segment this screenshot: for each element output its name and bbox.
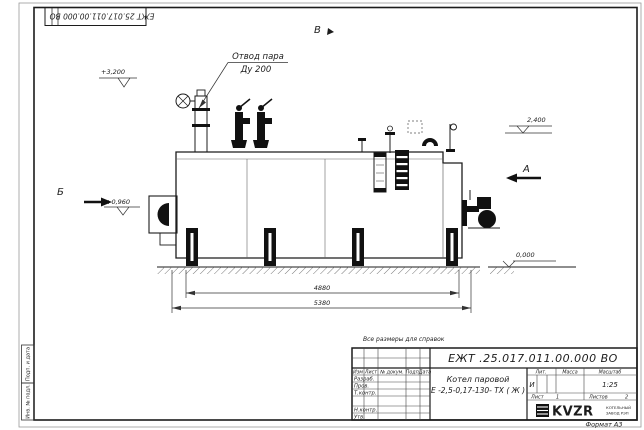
view-label-left: Б xyxy=(57,187,112,207)
safety-valve-2 xyxy=(253,99,272,148)
title-block: ЕЖТ .25.017.011.00.000 ВО Котел паровой … xyxy=(352,348,637,421)
view-label-top: В xyxy=(314,25,334,36)
elev-2400-label: 2,400 xyxy=(527,116,546,124)
col-data: Дата xyxy=(418,370,431,376)
sheets-value: 2 xyxy=(625,395,628,401)
top-left-stamp: ЕЖТ 25.017.011.00.000 ВО xyxy=(45,8,154,26)
lit-label: Лит. xyxy=(534,370,546,376)
col-docnum: № докум. xyxy=(379,370,404,376)
left-margin-stamps: Подп. и дата Инв. № подл. xyxy=(22,345,35,420)
drawing-canvas: ЕЖТ 25.017.011.00.000 ВО Подп. и дата Ин… xyxy=(0,0,644,430)
scale-value: 1:25 xyxy=(602,381,618,389)
product-name-line1: Котел паровой xyxy=(447,375,510,384)
col-izm: Изм xyxy=(353,370,363,376)
leader-line2: Ду 200 xyxy=(240,65,272,75)
leader-line1: Отвод пара xyxy=(232,52,284,62)
ground-line xyxy=(157,267,576,274)
elevation-ground: 0,000 xyxy=(503,251,556,267)
title-doc-number: ЕЖТ .25.017.011.00.000 ВО xyxy=(448,352,618,365)
reference-note: Все размеры для справок xyxy=(363,336,445,343)
margin-stamp-sign-date: Подп. и дата xyxy=(26,347,32,381)
level-gauge-assembly xyxy=(358,121,457,192)
kvzr-logo: KVZR КОТЕЛЬНЫЙ ЗАВОД РЭП xyxy=(536,404,631,420)
elev-0000-label: 0,000 xyxy=(516,251,535,259)
sheet-label: Лист xyxy=(530,395,545,401)
kvzr-logo-text: KVZR xyxy=(552,405,594,420)
boiler-body xyxy=(176,152,462,258)
role-utv: Утв. xyxy=(354,415,365,421)
safety-valves xyxy=(231,99,272,148)
sheets-label: Листов xyxy=(588,395,608,401)
role-nkontr: Н.контр. xyxy=(354,408,377,414)
view-b-label: Б xyxy=(57,187,64,198)
kvzr-caption-line2: ЗАВОД РЭП xyxy=(606,411,629,416)
mass-label: Масса xyxy=(562,370,577,376)
dim-overall-length-value: 5380 xyxy=(314,299,331,307)
drawing-sheet: ЕЖТ 25.017.011.00.000 ВО Подп. и дата Ин… xyxy=(0,0,644,430)
kvzr-caption-line1: КОТЕЛЬНЫЙ xyxy=(606,405,631,410)
sheet-value: 1 xyxy=(556,395,559,401)
view-a-label: А xyxy=(522,164,530,175)
product-name-line2: Е -2,5-0,17-130- ТХ ( Ж ) xyxy=(431,386,525,395)
view-label-right: А xyxy=(506,164,541,183)
pump-assembly xyxy=(462,190,500,228)
format-label: Формат А3 xyxy=(585,421,622,429)
col-list: Лист xyxy=(364,370,377,376)
role-prov: Пров. xyxy=(354,384,369,390)
elev-3200-label: +3,200 xyxy=(101,68,125,76)
leader-steam-outlet: Отвод пара Ду 200 xyxy=(199,52,288,108)
top-stamp-doc-number: ЕЖТ 25.017.011.00.000 ВО xyxy=(50,12,155,21)
dimension-supports-span: 4880 xyxy=(186,270,459,298)
lit-value: И xyxy=(529,381,535,389)
elevation-burner-axis: +0,960 xyxy=(104,198,140,215)
dim-supports-span-value: 4880 xyxy=(314,284,331,292)
elevation-drum-right: 2,400 xyxy=(505,116,552,133)
view-v-label: В xyxy=(314,25,321,36)
support-feet xyxy=(186,228,458,266)
view-v-arrow-icon xyxy=(327,28,334,35)
elevation-valves-top: +3,200 xyxy=(99,68,137,87)
scale-label: Масштаб xyxy=(599,370,622,376)
firebox-door xyxy=(149,196,177,245)
safety-valve-1 xyxy=(231,99,250,148)
role-razrab: Разраб. xyxy=(354,377,374,383)
margin-stamp-inv-number: Инв. № подл. xyxy=(26,384,32,419)
role-tkontr: Т.контр. xyxy=(354,391,376,397)
